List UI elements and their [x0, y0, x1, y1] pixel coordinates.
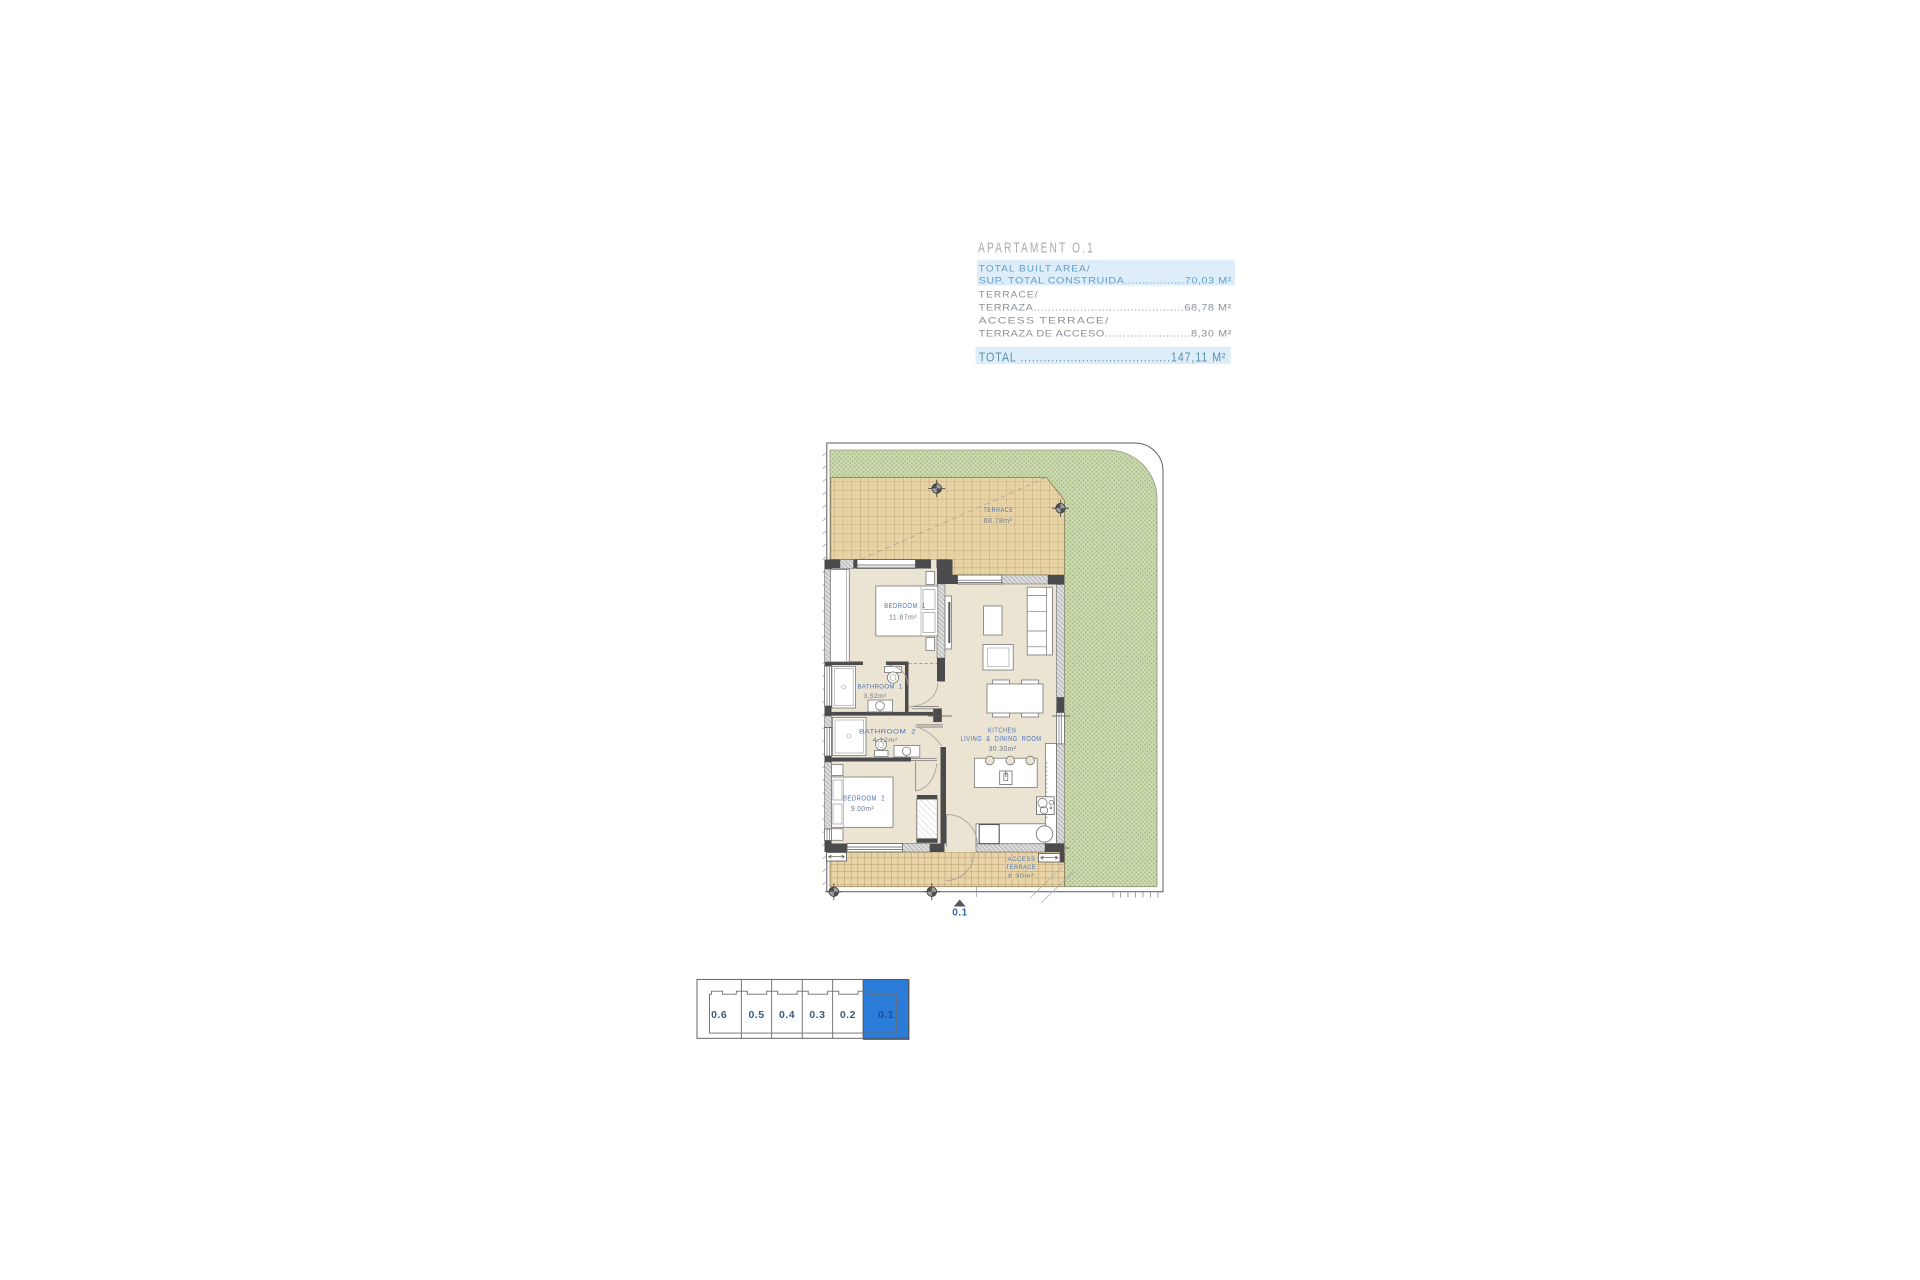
svg-text:0.4: 0.4	[779, 1009, 795, 1021]
svg-text:TOTAL ........................: TOTAL ..................................…	[979, 351, 1227, 365]
svg-text:APARTAMENT O.1: APARTAMENT O.1	[978, 241, 1095, 257]
svg-text:TERRACE: TERRACE	[984, 507, 1014, 514]
svg-text:68.78m²: 68.78m²	[984, 518, 1013, 525]
svg-text:BEDROOM 1: BEDROOM 1	[884, 603, 926, 610]
svg-text:11.87m²: 11.87m²	[889, 615, 917, 622]
svg-text:0.6: 0.6	[711, 1009, 727, 1021]
svg-text:LIVING & DINING ROOM: LIVING & DINING ROOM	[961, 736, 1042, 743]
svg-text:3.52m²: 3.52m²	[864, 693, 888, 700]
svg-text:8.30m²: 8.30m²	[1008, 873, 1034, 880]
svg-text:BATHROOM 2: BATHROOM 2	[859, 729, 916, 736]
svg-text:TERRACE: TERRACE	[1006, 864, 1036, 871]
svg-text:0.5: 0.5	[748, 1009, 764, 1021]
svg-text:0.1: 0.1	[878, 1009, 894, 1021]
svg-text:4.12m²: 4.12m²	[873, 737, 899, 744]
svg-text:ACCESS TERRACE/: ACCESS TERRACE/	[979, 316, 1110, 327]
svg-text:KITCHEN: KITCHEN	[988, 728, 1016, 735]
svg-text:9.00m²: 9.00m²	[851, 806, 874, 813]
svg-text:TERRAZA.......................: TERRAZA.................................…	[979, 303, 1232, 314]
svg-text:30.30m²: 30.30m²	[989, 744, 1017, 753]
svg-text:SUP. TOTAL CONSTRUIDA.........: SUP. TOTAL CONSTRUIDA.................70…	[979, 276, 1232, 287]
svg-text:0.3: 0.3	[809, 1009, 825, 1021]
svg-text:TERRAZA DE ACCESO.............: TERRAZA DE ACCESO.......................…	[979, 329, 1232, 340]
svg-text:BEDROOM 2: BEDROOM 2	[843, 796, 885, 803]
svg-text:0.2: 0.2	[840, 1009, 856, 1021]
svg-text:ACCESS: ACCESS	[1008, 856, 1036, 863]
svg-text:TOTAL BUILT AREA/: TOTAL BUILT AREA/	[979, 264, 1091, 275]
svg-text:0.1: 0.1	[952, 908, 967, 919]
svg-text:TERRACE/: TERRACE/	[979, 290, 1039, 301]
svg-text:BATHROOM 1: BATHROOM 1	[858, 684, 903, 691]
